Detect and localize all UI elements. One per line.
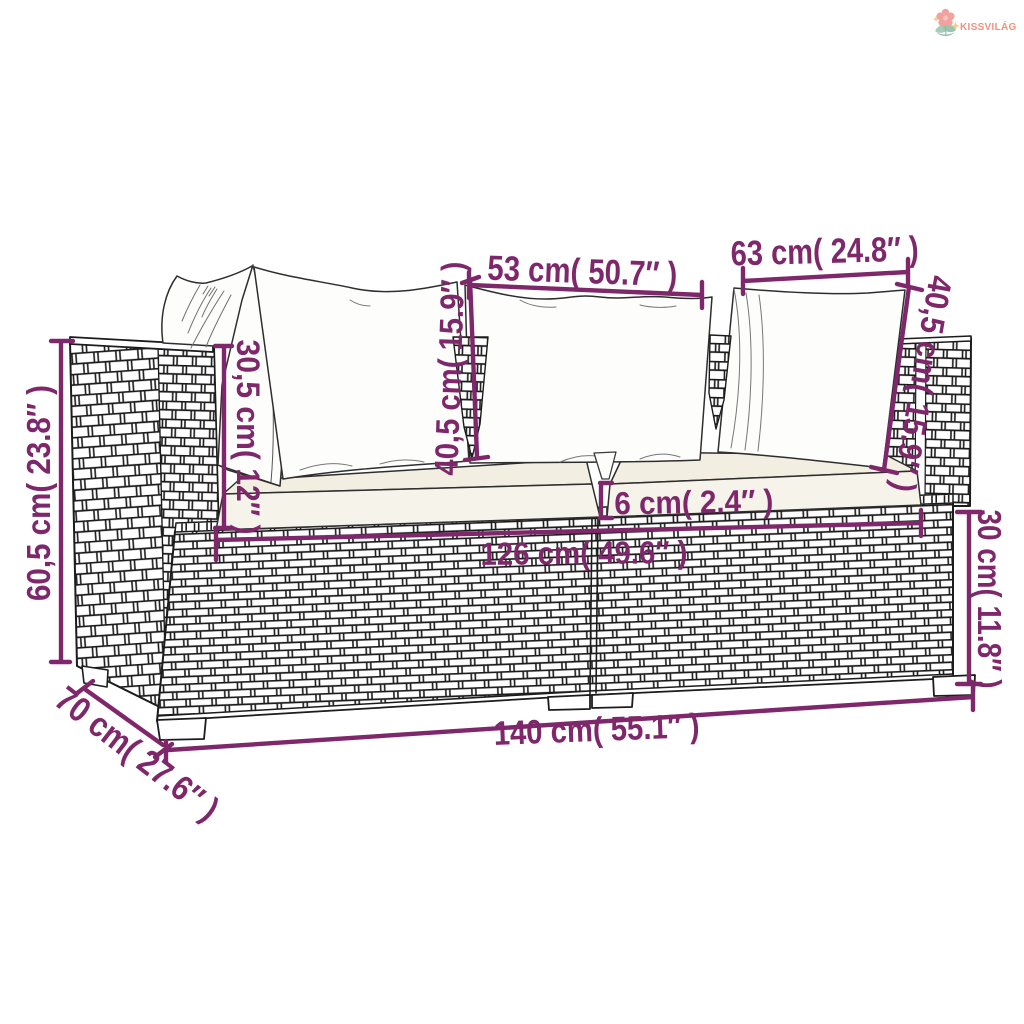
svg-text:53 cm( 50.7″ ): 53 cm( 50.7″ ) [487,249,678,295]
svg-text:6 cm( 2.4″ ): 6 cm( 2.4″ ) [614,483,774,522]
svg-text:60,5 cm( 23.8″ ): 60,5 cm( 23.8″ ) [20,385,57,601]
svg-text:40,5 cm( 15.9″ ): 40,5 cm( 15.9″ ) [427,261,471,476]
svg-text:30 cm( 11.8″ ): 30 cm( 11.8″ ) [971,510,1008,689]
svg-text:126 cm( 49.6″ ): 126 cm( 49.6″ ) [480,534,687,572]
svg-text:30,5 cm( 12″ ): 30,5 cm( 12″ ) [230,340,266,535]
svg-text:63 cm( 24.8″ ): 63 cm( 24.8″ ) [730,230,919,274]
svg-text:KISSVILÁG: KISSVILÁG [960,20,1017,33]
svg-text:140 cm( 55.1″ ): 140 cm( 55.1″ ) [493,707,700,753]
